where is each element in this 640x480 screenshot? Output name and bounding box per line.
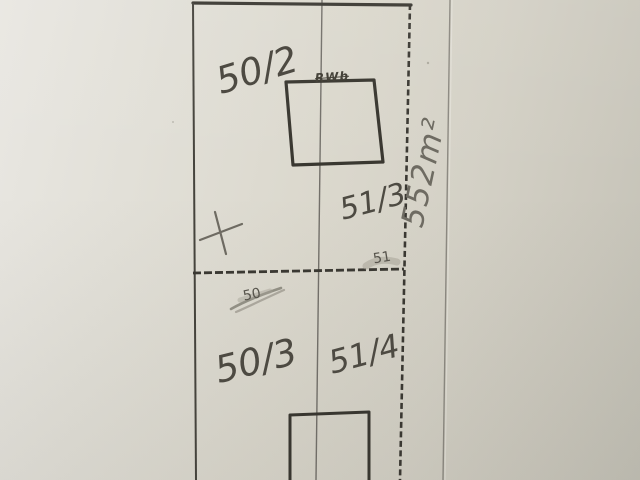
plot-boundary-right-dashed xyxy=(400,4,410,480)
plot-boundary-left xyxy=(193,3,196,480)
building-outline-lower xyxy=(290,412,369,480)
building-outline-upper xyxy=(286,80,383,165)
boundary-point-51: 51 xyxy=(372,249,392,268)
scanned-plot-sketch: 50/2 51/3 50/3 51/4 552m² 51 50 RWb xyxy=(0,0,640,480)
paper-speck-2 xyxy=(172,121,174,123)
boundary-point-50: 50 xyxy=(242,285,263,304)
paper-speck xyxy=(427,62,429,64)
parcel-divider-dashed xyxy=(193,269,404,273)
overwritten-note: RWb xyxy=(315,69,350,85)
plot-boundary-top xyxy=(193,3,411,5)
